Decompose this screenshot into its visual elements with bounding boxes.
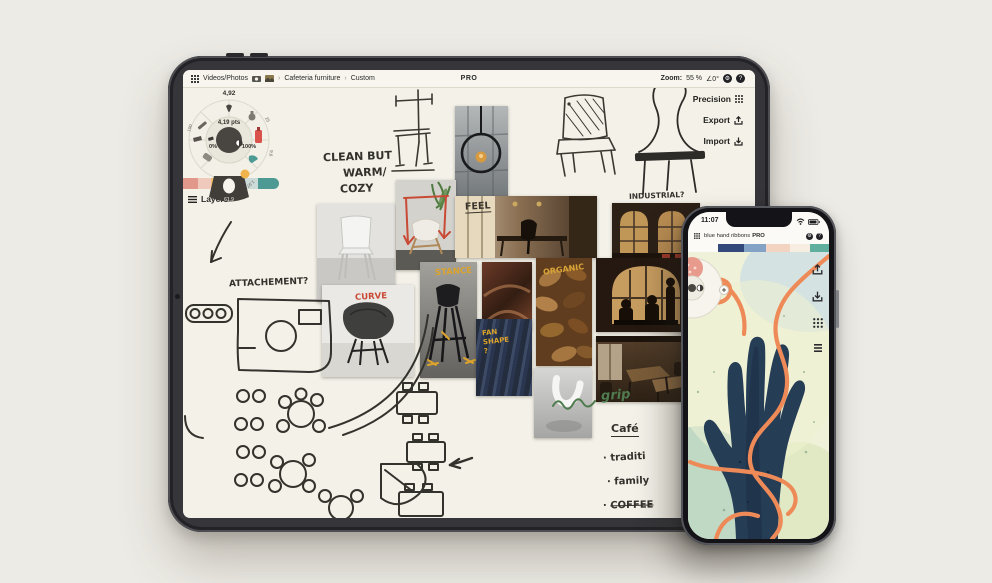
- ipad-toolbar: Videos/Photos › Cafeteria furniture › Cu…: [183, 70, 755, 88]
- breadcrumb-cafeteria-furniture[interactable]: Cafeteria furniture: [284, 75, 340, 82]
- export-icon: [734, 116, 743, 125]
- ipad-canvas[interactable]: Videos/Photos › Cafeteria furniture › Cu…: [183, 70, 755, 518]
- import-icon[interactable]: [812, 291, 823, 302]
- label-fan-shape: FAN SHAPE ?: [482, 327, 511, 357]
- grip-squiggle: [551, 394, 597, 410]
- iphone-notch: [726, 212, 792, 227]
- bullet: ·: [607, 477, 611, 488]
- settings-gear-icon[interactable]: ⚙: [806, 233, 813, 240]
- label-curve: CURVE: [355, 291, 388, 303]
- ring-value: 9,6: [268, 150, 274, 157]
- status-time: 11:07: [701, 217, 719, 224]
- import-icon: [734, 137, 743, 146]
- breadcrumb-separator: ›: [344, 75, 346, 82]
- note-cafe-title: Café: [611, 422, 639, 437]
- arrow-sketch-down: [203, 220, 237, 272]
- note-grip: grip: [601, 387, 631, 404]
- note-cafe-item: · traditi: [603, 451, 646, 464]
- chair-sketch-side: [388, 86, 446, 174]
- color-palette: [718, 244, 829, 252]
- bullet: ·: [603, 453, 607, 464]
- camera-roll-icon[interactable]: [252, 75, 261, 82]
- cafe-item-coffee: COFFEE: [610, 500, 653, 512]
- zoom-label: Zoom:: [661, 75, 682, 82]
- zoom-value[interactable]: 55 %: [686, 75, 702, 82]
- photo-cafe-window: [596, 258, 692, 332]
- color-dot[interactable]: [241, 170, 250, 179]
- apps-grid-icon[interactable]: [191, 75, 199, 83]
- breadcrumb-videos-photos[interactable]: Videos/Photos: [203, 75, 248, 82]
- ipad-volume-up-button: [226, 53, 244, 57]
- pro-badge: PRO: [752, 233, 765, 239]
- angle-value[interactable]: ∠0°: [706, 75, 719, 83]
- cafe-item-family: family: [614, 475, 649, 487]
- note-cozy: COZY: [340, 181, 374, 195]
- floor-plan-sketch: [183, 296, 465, 518]
- import-button[interactable]: Import: [693, 136, 743, 146]
- cafe-item-tradition: traditi: [610, 451, 646, 464]
- precision-button[interactable]: Precision: [693, 94, 743, 104]
- wifi-icon: [796, 218, 805, 225]
- export-icon[interactable]: [812, 264, 823, 275]
- ipad-device: Videos/Photos › Cafeteria furniture › Cu…: [168, 56, 770, 532]
- opacity-min-value: 0%: [209, 144, 217, 150]
- note-warm: WARM/: [343, 165, 387, 180]
- brush-size-value: 4,92: [223, 90, 236, 97]
- battery-icon: [808, 219, 820, 225]
- ipad-front-camera: [175, 294, 180, 299]
- export-button[interactable]: Export: [693, 115, 743, 125]
- handle-value: 61.9: [224, 197, 234, 203]
- note-industrial: INDUSTRIAL?: [629, 190, 685, 201]
- note-clean-but: CLEAN BUT: [323, 149, 392, 164]
- side-action-panel: Precision Export Import: [693, 94, 743, 157]
- help-icon[interactable]: ?: [816, 233, 823, 240]
- export-label: Export: [703, 115, 730, 125]
- photo-plant-chair: [396, 180, 456, 270]
- import-label: Import: [704, 136, 730, 146]
- arrow-sketch-left: [445, 452, 475, 472]
- label-feel: FEEL: [465, 200, 491, 213]
- precision-grid-icon: [735, 95, 743, 103]
- settings-gear-icon[interactable]: ⚙: [723, 74, 732, 83]
- opacity-max-value: 100%: [242, 144, 256, 150]
- layers-grid-icon[interactable]: [814, 344, 822, 352]
- palette-swatch[interactable]: [790, 244, 810, 252]
- photo-pendant-lamp: [455, 106, 508, 200]
- pro-badge: PRO: [461, 75, 478, 82]
- tool-wheel[interactable]: [688, 254, 730, 326]
- apps-grid-icon[interactable]: [694, 233, 700, 239]
- iphone-side-actions: [812, 264, 823, 352]
- note-cafe-item: · COFFEE: [603, 500, 654, 512]
- chair-sketch-hatched: [551, 92, 619, 180]
- ring-value: 1,97: [245, 179, 255, 189]
- bullet: ·: [603, 500, 607, 511]
- palette-swatch[interactable]: [766, 244, 790, 252]
- precision-label: Precision: [693, 94, 731, 104]
- albums-icon[interactable]: [265, 75, 274, 82]
- note-attachment: ATTACHEMENT?: [229, 277, 309, 290]
- iphone-toolbar: blue hand ribbons › PRO ⚙ ?: [688, 229, 829, 243]
- palette-swatch[interactable]: [718, 244, 744, 252]
- document-title[interactable]: blue hand ribbons: [704, 233, 750, 239]
- iphone-canvas[interactable]: 11:07 blue hand ribbons › PRO ⚙ ?: [688, 212, 829, 539]
- precision-grid-icon[interactable]: [813, 318, 823, 328]
- breadcrumb-separator: ›: [278, 75, 280, 82]
- help-icon[interactable]: ?: [736, 74, 745, 83]
- iphone-power-button: [836, 290, 839, 328]
- ipad-volume-down-button: [250, 53, 268, 57]
- tool-wheel[interactable]: 100 25 9,6 1,97 4,19 pts 0% 100% 4,92: [183, 88, 281, 206]
- iphone-device: 11:07 blue hand ribbons › PRO ⚙ ?: [681, 206, 836, 545]
- wheel-handle[interactable]: 61.9: [209, 176, 249, 203]
- stroke-width-value: 4,19 pts: [218, 120, 241, 126]
- palette-swatch[interactable]: [744, 244, 766, 252]
- scene: Videos/Photos › Cafeteria furniture › Cu…: [0, 0, 992, 583]
- breadcrumb-custom[interactable]: Custom: [351, 75, 375, 82]
- palette-swatch[interactable]: [810, 244, 829, 252]
- note-cafe-item: · family: [607, 475, 650, 487]
